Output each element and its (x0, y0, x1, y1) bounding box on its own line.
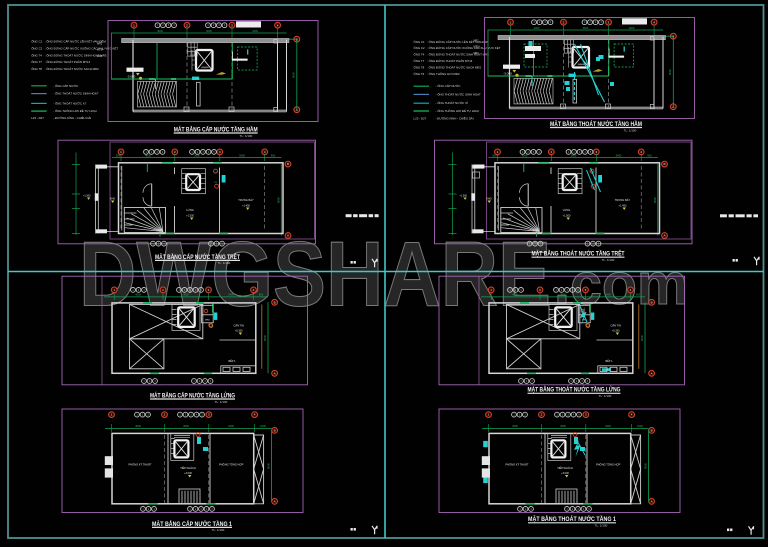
svg-text:8000: 8000 (644, 463, 648, 469)
svg-text:+1.450: +1.450 (242, 205, 250, 208)
svg-text:ỐNG T8: ỐNG T8 (31, 66, 42, 71)
svg-text:TRƯNG BÀY: TRƯNG BÀY (615, 198, 631, 202)
svg-text:8000: 8000 (267, 463, 271, 469)
svg-text:600: 600 (259, 293, 264, 297)
svg-text:TL: 1/100: TL: 1/100 (240, 134, 253, 138)
svg-text:ỐNG C1: ỐNG C1 (414, 39, 425, 44)
svg-text:ỐNG T4: ỐNG T4 (31, 52, 42, 57)
svg-text:L23 - D27: L23 - D27 (414, 117, 427, 121)
svg-text:1500: 1500 (260, 424, 266, 428)
svg-text:TL: 1/100: TL: 1/100 (218, 261, 231, 265)
svg-text:- ĐƯỜNG KÍNH - CHIỀU DÀI: - ĐƯỜNG KÍNH - CHIỀU DÀI (53, 115, 91, 120)
svg-text:ỐNG T7: ỐNG T7 (414, 58, 425, 63)
svg-text:: ỐNG ĐỨNG CẤP NƯỚC XUỐNG CÁC: : ỐNG ĐỨNG CẤP NƯỚC XUỐNG CÁC KHU VỰC KÉ… (427, 45, 501, 50)
svg-text:3600: 3600 (560, 293, 566, 297)
svg-text:+5.200: +5.200 (612, 330, 620, 333)
svg-text:500: 500 (492, 153, 497, 157)
svg-text:+3.000: +3.000 (184, 472, 192, 475)
svg-text:-3.000: -3.000 (127, 75, 136, 79)
svg-text:+1.500: +1.500 (83, 195, 91, 198)
svg-text:-3.000: -3.000 (503, 72, 512, 76)
svg-text:600: 600 (271, 153, 276, 157)
svg-text:- ỐNG THOÁT NƯỚC SINH HOẠT: - ỐNG THOÁT NƯỚC SINH HOẠT (53, 91, 99, 96)
svg-text:: ỐNG ĐỨNG THOÁT PHÂN MT14: : ỐNG ĐỨNG THOÁT PHÂN MT14 (45, 59, 91, 64)
svg-text:MR3: MR3 (474, 52, 480, 55)
svg-text:8000: 8000 (292, 72, 296, 78)
svg-text:L23 - D27: L23 - D27 (31, 116, 44, 120)
svg-text:+1.450: +1.450 (619, 205, 627, 208)
svg-text:KHO: KHO (110, 198, 115, 201)
svg-text:: ỐNG ĐỨNG THOÁT NƯỚC SINH HOẠ: : ỐNG ĐỨNG THOÁT NƯỚC SINH HOẠT MR3 (427, 52, 489, 57)
svg-text:A: A (274, 371, 276, 375)
svg-text:B: B (287, 162, 289, 166)
svg-text:3600: 3600 (194, 153, 200, 157)
svg-text:4000: 4000 (157, 29, 163, 33)
svg-text:KHO: KHO (486, 198, 491, 201)
svg-text:4000: 4000 (145, 153, 151, 157)
svg-text:ỐNG C2: ỐNG C2 (414, 45, 425, 50)
svg-text:A: A (663, 234, 665, 238)
svg-text:: ỐNG THÔNG HƠI MR2: : ỐNG THÔNG HƠI MR2 (427, 71, 460, 76)
svg-text:MT14: MT14 (474, 46, 481, 49)
svg-text:ỐNG C2: ỐNG C2 (31, 45, 42, 50)
svg-text:4000: 4000 (512, 424, 518, 428)
svg-text:4000: 4000 (512, 293, 518, 297)
svg-text:3600: 3600 (183, 424, 189, 428)
svg-text:TL: 1/100: TL: 1/100 (624, 128, 637, 132)
svg-text:TL: 1/100: TL: 1/100 (212, 528, 225, 532)
svg-text:MR3: MR3 (97, 55, 103, 58)
svg-text:- ỐNG THÔNG HƠI ĐỂ TỰ HOẠI: - ỐNG THÔNG HƠI ĐỂ TỰ HOẠI (53, 108, 97, 113)
svg-text:8000: 8000 (640, 335, 644, 341)
svg-text:MR2: MR2 (97, 43, 103, 46)
svg-text:B: B (274, 300, 276, 304)
svg-text:ỐNG T7: ỐNG T7 (31, 59, 42, 64)
svg-text:B: B (651, 429, 653, 433)
svg-text:600: 600 (647, 153, 652, 157)
svg-text:3400: 3400 (605, 424, 611, 428)
svg-text:3600: 3600 (206, 29, 212, 33)
svg-text:3400: 3400 (239, 153, 245, 157)
svg-text:500: 500 (116, 153, 121, 157)
svg-text:+5.200: +5.200 (235, 330, 243, 333)
svg-text:BẾP 1: BẾP 1 (605, 360, 613, 363)
svg-text:CĂN TIN: CĂN TIN (611, 324, 621, 328)
svg-text:CĂN TIN: CĂN TIN (234, 324, 244, 328)
svg-text:3400: 3400 (616, 153, 622, 157)
svg-text:- ỐNG THOÁT NƯỚC XÍ: - ỐNG THOÁT NƯỚC XÍ (436, 100, 469, 105)
svg-text:A: A (274, 500, 276, 504)
svg-text:3600: 3600 (571, 153, 577, 157)
svg-text:8000: 8000 (263, 335, 267, 341)
svg-text:3400: 3400 (228, 293, 234, 297)
svg-text:+1.500: +1.500 (186, 215, 194, 218)
svg-text:- ỐNG THOÁT NƯỚC XÍ: - ỐNG THOÁT NƯỚC XÍ (53, 100, 86, 105)
svg-text:TL: 1/100: TL: 1/100 (602, 258, 615, 262)
svg-text:- ĐƯỜNG KÍNH - CHIỀU DÀI: - ĐƯỜNG KÍNH - CHIỀU DÀI (436, 116, 474, 121)
svg-text:TRƯNG BÀY: TRƯNG BÀY (238, 198, 254, 202)
svg-text:4000: 4000 (135, 424, 141, 428)
svg-text:- ỐNG CẤP NƯỚC: - ỐNG CẤP NƯỚC (436, 83, 461, 88)
svg-text:3600: 3600 (583, 26, 589, 30)
svg-text:MT14: MT14 (97, 49, 104, 52)
svg-text:3400: 3400 (228, 424, 234, 428)
svg-text:MR3: MR3 (205, 320, 210, 322)
svg-text:+3.000: +3.000 (561, 472, 569, 475)
svg-text:TL: 1/100: TL: 1/100 (215, 400, 228, 404)
svg-text:3400: 3400 (605, 293, 611, 297)
svg-text:- ỐNG THÔNG HƠI ĐỂ TỰ HOẠI: - ỐNG THÔNG HƠI ĐỂ TỰ HOẠI (436, 108, 480, 113)
svg-text:ỐNG T8: ỐNG T8 (414, 64, 425, 69)
svg-text:TL: 1/100: TL: 1/100 (595, 524, 608, 528)
svg-text:8000: 8000 (276, 197, 280, 203)
svg-text:MR2: MR2 (474, 40, 480, 43)
svg-text:: ỐNG ĐỨNG THOÁT NƯỚC SẠCH MR2: : ỐNG ĐỨNG THOÁT NƯỚC SẠCH MR2 (427, 64, 481, 69)
svg-text:ỐNG T6: ỐNG T6 (414, 71, 425, 76)
svg-text:BẾP 1: BẾP 1 (228, 360, 236, 363)
svg-text:A: A (651, 371, 653, 375)
svg-text:: ỐNG ĐỨNG THOÁT PHÂN MT14: : ỐNG ĐỨNG THOÁT PHÂN MT14 (427, 58, 473, 63)
svg-text:4000: 4000 (522, 153, 528, 157)
svg-text:3600: 3600 (183, 293, 189, 297)
svg-text:: ỐNG ĐỨNG THOÁT NƯỚC SẠCH MR2: : ỐNG ĐỨNG THOÁT NƯỚC SẠCH MR2 (45, 66, 99, 71)
svg-text:: ỐNG ĐỨNG CẤP NƯỚC XUỐNG CÁC: : ỐNG ĐỨNG CẤP NƯỚC XUỐNG CÁC KHU VỰC KÉ… (45, 45, 119, 50)
svg-text:3600: 3600 (560, 424, 566, 428)
svg-text:ỐNG T4: ỐNG T4 (414, 52, 425, 57)
svg-text:+1.500: +1.500 (460, 195, 468, 198)
svg-text:1500: 1500 (637, 424, 643, 428)
svg-text:4000: 4000 (135, 293, 141, 297)
svg-text:600: 600 (636, 293, 641, 297)
svg-text:TL: 1/100: TL: 1/100 (599, 394, 612, 398)
svg-text:: ỐNG ĐỨNG CẤP NƯỚC LÊN KÉT VA: : ỐNG ĐỨNG CẤP NƯỚC LÊN KÉT VAN ĐÊM (427, 39, 489, 44)
svg-text:- ỐNG THOÁT NƯỚC SINH HOẠT: - ỐNG THOÁT NƯỚC SINH HOẠT (436, 91, 482, 96)
svg-text:+1.500: +1.500 (563, 215, 571, 218)
svg-text:3400: 3400 (629, 26, 635, 30)
svg-text:3400: 3400 (252, 29, 258, 33)
svg-text:A: A (651, 500, 653, 504)
svg-text:B: B (651, 300, 653, 304)
svg-text:A: A (287, 234, 289, 238)
svg-text:8000: 8000 (668, 69, 672, 75)
svg-text:B: B (663, 162, 665, 166)
svg-text:8000: 8000 (653, 197, 657, 203)
svg-text:- ỐNG CẤP NƯỚC: - ỐNG CẤP NƯỚC (53, 83, 78, 88)
svg-text:B: B (274, 429, 276, 433)
svg-text:ỐNG C1: ỐNG C1 (31, 38, 42, 43)
svg-text:4000: 4000 (534, 26, 540, 30)
